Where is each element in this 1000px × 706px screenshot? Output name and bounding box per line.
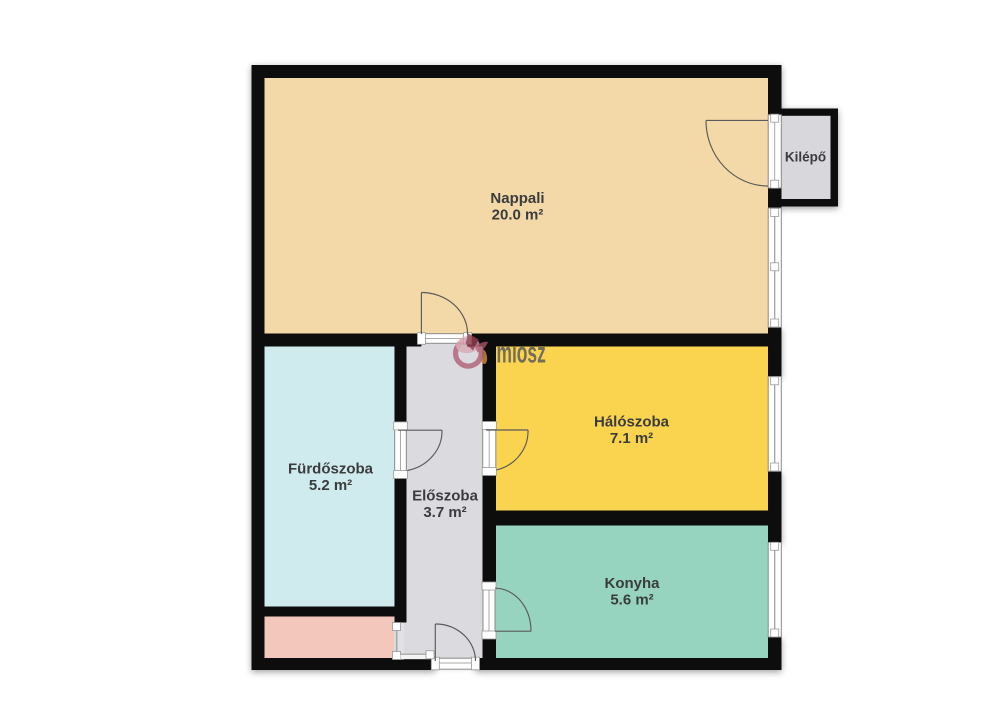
svg-text:20.0 m²: 20.0 m² bbox=[492, 207, 544, 224]
svg-text:7.1 m²: 7.1 m² bbox=[610, 430, 653, 447]
svg-text:Fürdőszoba: Fürdőszoba bbox=[288, 461, 374, 478]
svg-text:Nappali: Nappali bbox=[490, 190, 544, 207]
svg-text:Hálószoba: Hálószoba bbox=[594, 414, 670, 431]
svg-text:5.2 m²: 5.2 m² bbox=[309, 477, 352, 494]
svg-text:Konyha: Konyha bbox=[604, 575, 660, 592]
svg-text:5.6 m²: 5.6 m² bbox=[610, 592, 653, 609]
svg-text:3.7 m²: 3.7 m² bbox=[423, 504, 466, 521]
svg-text:Kilépő: Kilépő bbox=[785, 150, 826, 165]
svg-text:Előszoba: Előszoba bbox=[412, 488, 479, 505]
svg-text:mıosz: mıosz bbox=[497, 337, 546, 370]
